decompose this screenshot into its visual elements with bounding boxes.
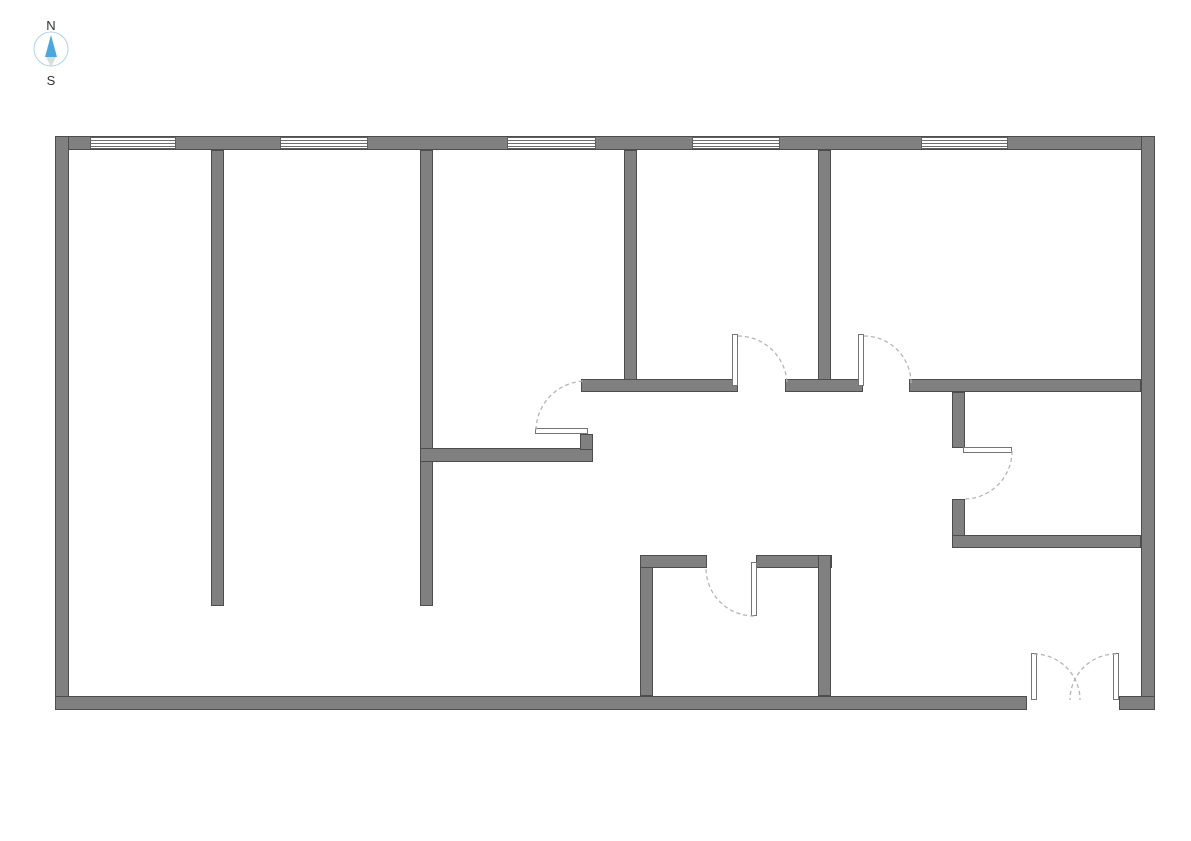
wall-outer-right bbox=[1141, 136, 1155, 710]
wall-south-room-north-west bbox=[640, 555, 707, 568]
door-arc-layer bbox=[0, 0, 1191, 841]
wall-outer-left bbox=[55, 136, 69, 710]
entrance-door-leaf-left bbox=[1031, 653, 1037, 700]
wall-hall-north-mid bbox=[785, 379, 863, 392]
wall-south-room-east bbox=[818, 555, 831, 696]
wall-outer-bottom-east bbox=[1119, 696, 1155, 710]
entrance-door-arc-right bbox=[1070, 654, 1116, 700]
window-2 bbox=[280, 137, 368, 149]
window-5 bbox=[921, 137, 1008, 149]
compass-rose: N S bbox=[20, 4, 82, 90]
floorplan-canvas: N S bbox=[0, 0, 1191, 841]
south-room-door-leaf bbox=[751, 562, 757, 616]
wall-hall-north-west bbox=[581, 379, 738, 392]
wall-partition-mid-1 bbox=[624, 150, 637, 392]
window-4 bbox=[692, 137, 780, 149]
compass-south-label: S bbox=[47, 73, 56, 88]
hall-door-east-leaf bbox=[858, 334, 864, 386]
hall-door-west-leaf bbox=[732, 334, 738, 386]
corridor-door-leaf bbox=[535, 428, 588, 434]
wall-east-room-west-upper bbox=[952, 392, 965, 448]
wall-outer-bottom-west bbox=[55, 696, 1027, 710]
compass-north-label: N bbox=[46, 18, 55, 33]
east-room-door-leaf bbox=[963, 447, 1012, 453]
compass: N S bbox=[20, 4, 82, 90]
entrance-door-arc-left bbox=[1034, 654, 1080, 700]
window-1 bbox=[90, 137, 176, 149]
entrance-door-leaf-right bbox=[1113, 653, 1119, 700]
wall-partition-west-1 bbox=[211, 150, 224, 606]
corridor-door-arc bbox=[536, 381, 586, 430]
hall-door-east-arc bbox=[864, 336, 911, 383]
wall-partition-mid-2 bbox=[818, 150, 831, 392]
wall-corridor-stub bbox=[420, 448, 593, 462]
wall-partition-west-2 bbox=[420, 150, 433, 606]
wall-hall-north-east bbox=[909, 379, 1141, 392]
wall-corridor-stub-riser bbox=[580, 434, 593, 450]
wall-south-room-west bbox=[640, 555, 653, 696]
south-room-door-arc bbox=[706, 568, 754, 616]
window-3 bbox=[507, 137, 596, 149]
wall-east-room-south bbox=[952, 535, 1141, 548]
east-room-door-arc bbox=[964, 451, 1012, 499]
hall-door-west-arc bbox=[738, 336, 787, 385]
